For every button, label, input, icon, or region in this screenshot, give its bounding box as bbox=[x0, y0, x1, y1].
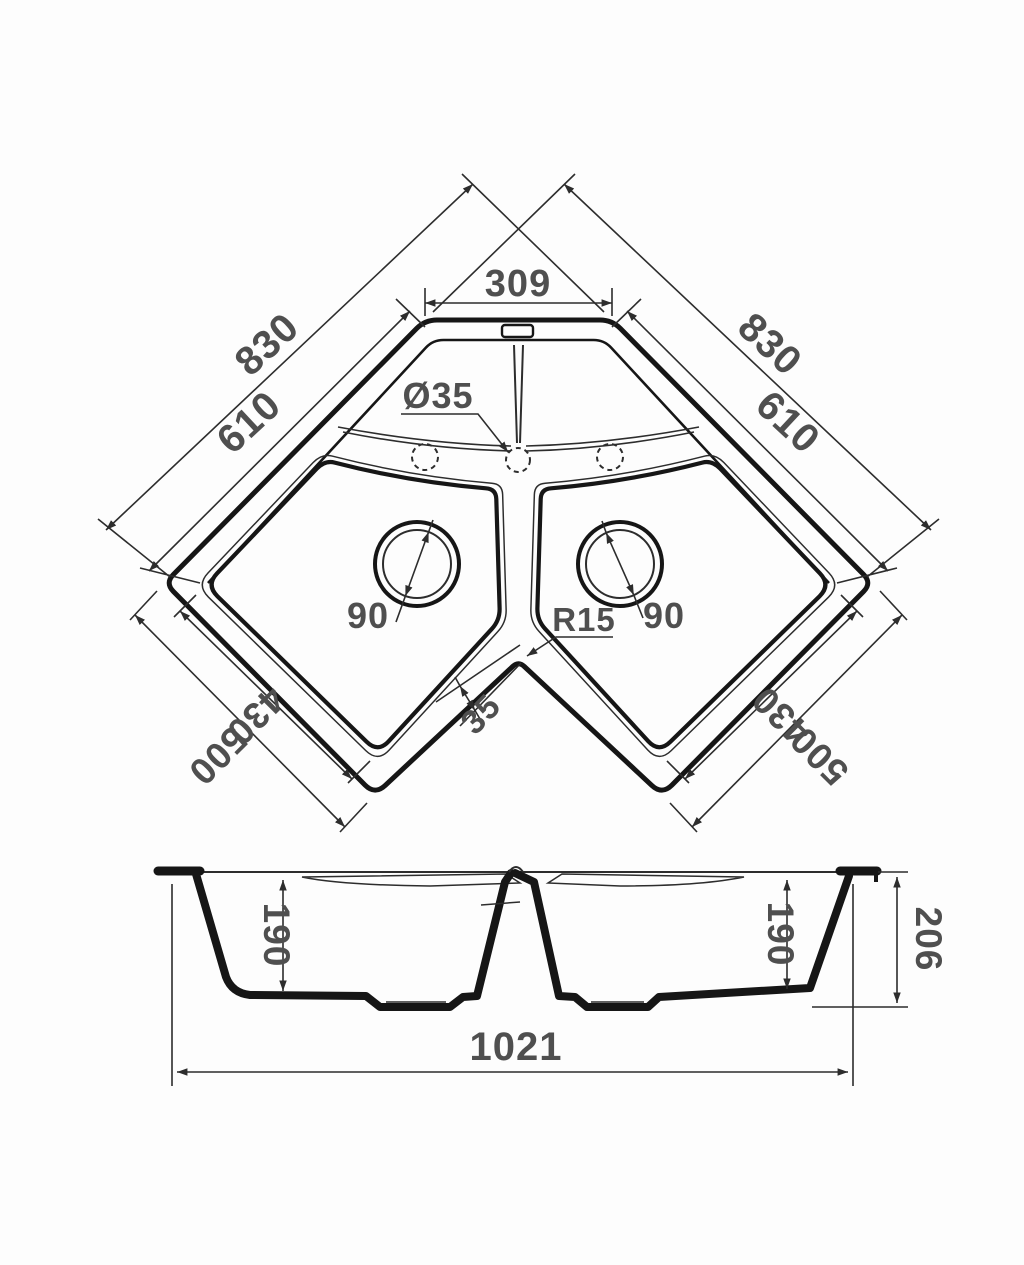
top-view: 830 610 830 610 309 Ø35 90 90 R15 35 430… bbox=[98, 174, 939, 832]
dim-text-610-right: 610 bbox=[747, 383, 828, 463]
dim-text-309: 309 bbox=[485, 263, 551, 305]
dim-text-830-right: 830 bbox=[729, 305, 810, 385]
dim-text-610-left: 610 bbox=[209, 383, 290, 463]
left-bowl-profile bbox=[196, 873, 511, 1007]
overflow-slot bbox=[502, 325, 533, 337]
dim-text-drain-right: 90 bbox=[643, 595, 685, 636]
dim-text-depth-left: 190 bbox=[256, 903, 297, 968]
sink-technical-drawing: 830 610 830 610 309 Ø35 90 90 R15 35 430… bbox=[0, 0, 1024, 1265]
dim-text-radius: R15 bbox=[552, 601, 616, 638]
dim-text-faucet-hole: Ø35 bbox=[402, 375, 473, 416]
deck-sliver-right bbox=[548, 874, 744, 886]
dim-text-drain-left: 90 bbox=[347, 595, 389, 636]
dim-text-height: 206 bbox=[908, 907, 949, 972]
deck-sliver-left bbox=[302, 874, 520, 886]
dim-text-depth-right: 190 bbox=[760, 902, 801, 967]
dim-text-830-left: 830 bbox=[227, 305, 308, 385]
side-view: 190 190 206 1021 bbox=[158, 867, 949, 1086]
dim-text-width: 1021 bbox=[470, 1025, 563, 1069]
